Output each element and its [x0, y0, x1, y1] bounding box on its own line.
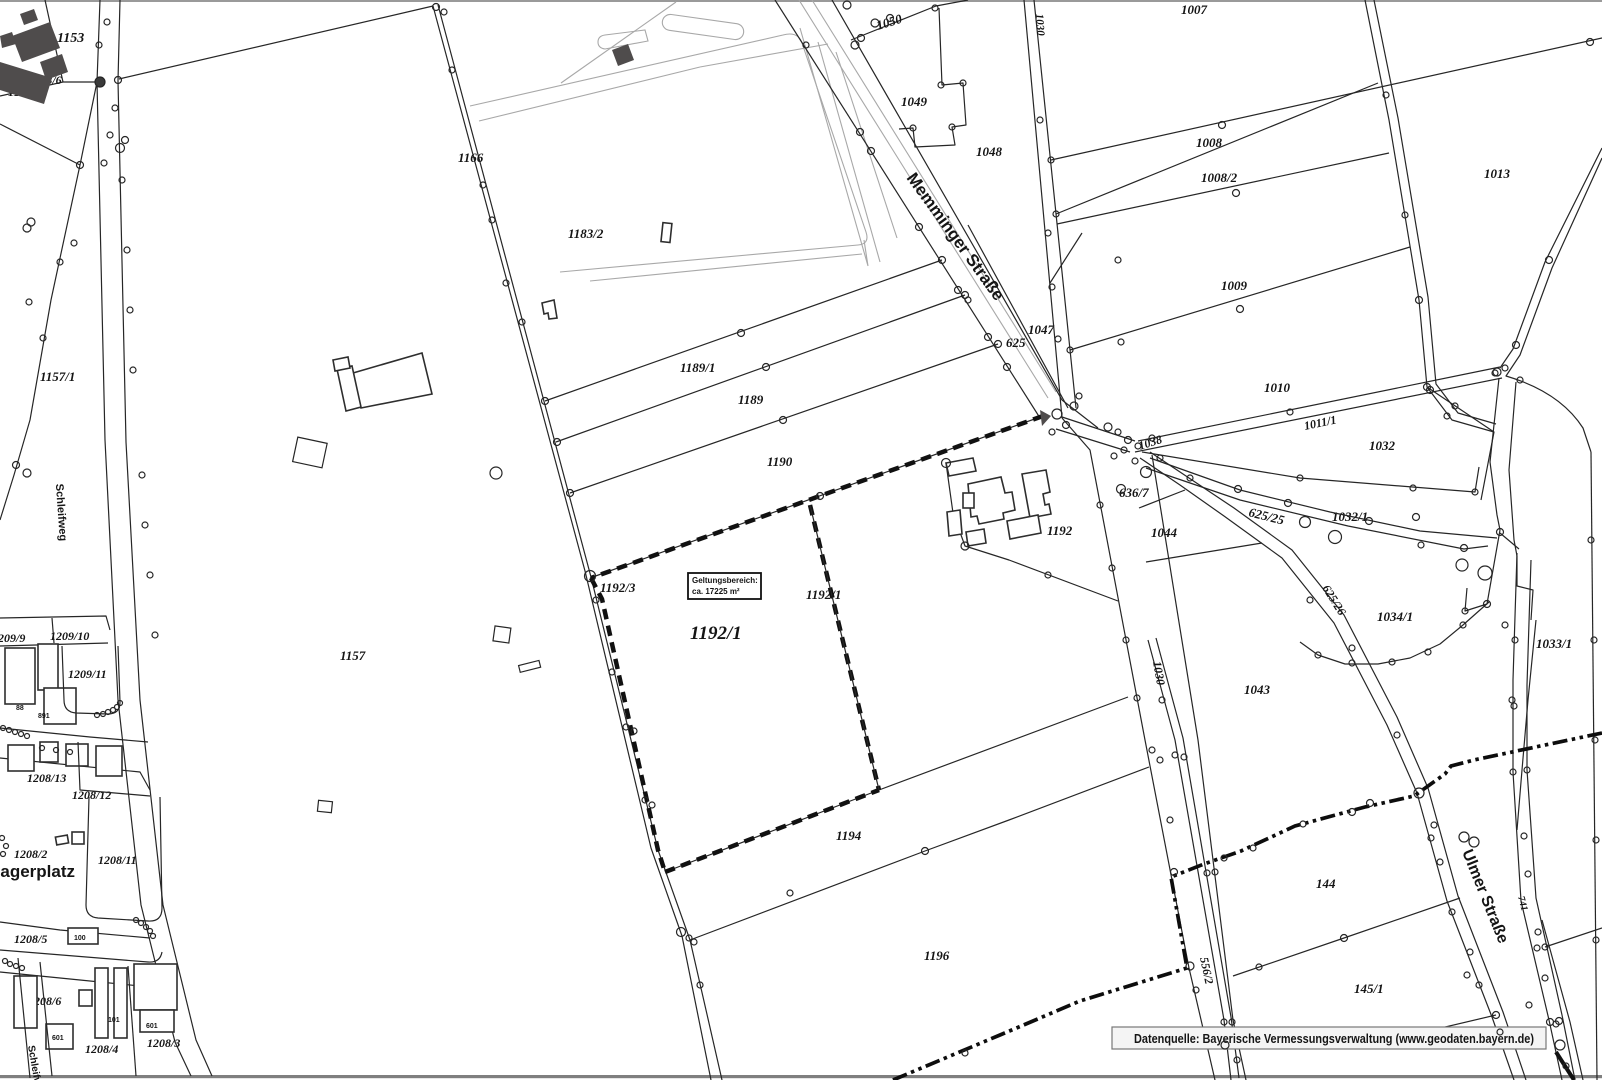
svg-text:1157: 1157	[340, 648, 366, 663]
svg-text:1208/5: 1208/5	[14, 932, 47, 946]
svg-text:891: 891	[38, 713, 50, 720]
svg-text:1047: 1047	[1028, 322, 1055, 337]
svg-text:1192: 1192	[1047, 523, 1073, 538]
svg-text:1008: 1008	[1196, 135, 1223, 150]
svg-text:1209/10: 1209/10	[50, 629, 89, 643]
svg-text:1208/4: 1208/4	[85, 1042, 118, 1056]
svg-text:1166: 1166	[458, 150, 484, 165]
svg-text:1196: 1196	[924, 948, 950, 963]
svg-text:1209/11: 1209/11	[68, 667, 107, 681]
svg-text:601: 601	[146, 1023, 158, 1030]
svg-text:1208/3: 1208/3	[147, 1036, 180, 1050]
svg-text:1192/1: 1192/1	[690, 623, 742, 644]
svg-text:101: 101	[108, 1017, 120, 1024]
svg-text:1189: 1189	[738, 392, 764, 407]
svg-text:145/1: 145/1	[1354, 981, 1384, 996]
svg-text:1153: 1153	[57, 31, 84, 46]
svg-text:625: 625	[1006, 335, 1026, 350]
svg-text:1208/2: 1208/2	[14, 847, 47, 861]
svg-text:1189/1: 1189/1	[680, 360, 715, 375]
svg-text:1208/12: 1208/12	[72, 788, 111, 802]
svg-text:1009: 1009	[1221, 278, 1248, 293]
svg-text:1007: 1007	[1181, 2, 1208, 17]
svg-text:1194: 1194	[836, 828, 862, 843]
svg-text:1033/1: 1033/1	[1536, 636, 1572, 651]
svg-text:1208/11: 1208/11	[98, 853, 137, 867]
svg-text:Datenquelle: Bayerische Vermes: Datenquelle: Bayerische Vermessungsverwa…	[1134, 1032, 1534, 1046]
svg-text:1190: 1190	[767, 454, 793, 469]
svg-text:144: 144	[1316, 876, 1336, 891]
svg-text:1049: 1049	[901, 94, 928, 109]
svg-text:601: 601	[52, 1035, 64, 1042]
svg-text:1030: 1030	[1033, 13, 1047, 36]
svg-text:1208/13: 1208/13	[27, 771, 66, 785]
svg-text:1048: 1048	[976, 144, 1003, 159]
svg-text:1013: 1013	[1484, 166, 1511, 181]
svg-text:1034/1: 1034/1	[1377, 609, 1413, 624]
svg-text:88: 88	[16, 705, 24, 712]
svg-text:1010: 1010	[1264, 380, 1291, 395]
svg-text:1008/2: 1008/2	[1201, 170, 1238, 185]
svg-text:209/9: 209/9	[0, 631, 25, 645]
svg-text:Lagerplatz: Lagerplatz	[0, 862, 75, 881]
svg-text:ca. 17225 m²: ca. 17225 m²	[692, 587, 740, 596]
svg-text:1043: 1043	[1244, 682, 1271, 697]
svg-text:1183/2: 1183/2	[568, 226, 604, 241]
svg-text:1032: 1032	[1369, 438, 1396, 453]
svg-text:100: 100	[74, 935, 86, 942]
svg-text:Geltungsbereich:: Geltungsbereich:	[692, 576, 758, 585]
svg-text:1192/1: 1192/1	[806, 587, 841, 602]
svg-text:1157/1: 1157/1	[40, 369, 75, 384]
svg-text:1192/3: 1192/3	[600, 580, 636, 595]
